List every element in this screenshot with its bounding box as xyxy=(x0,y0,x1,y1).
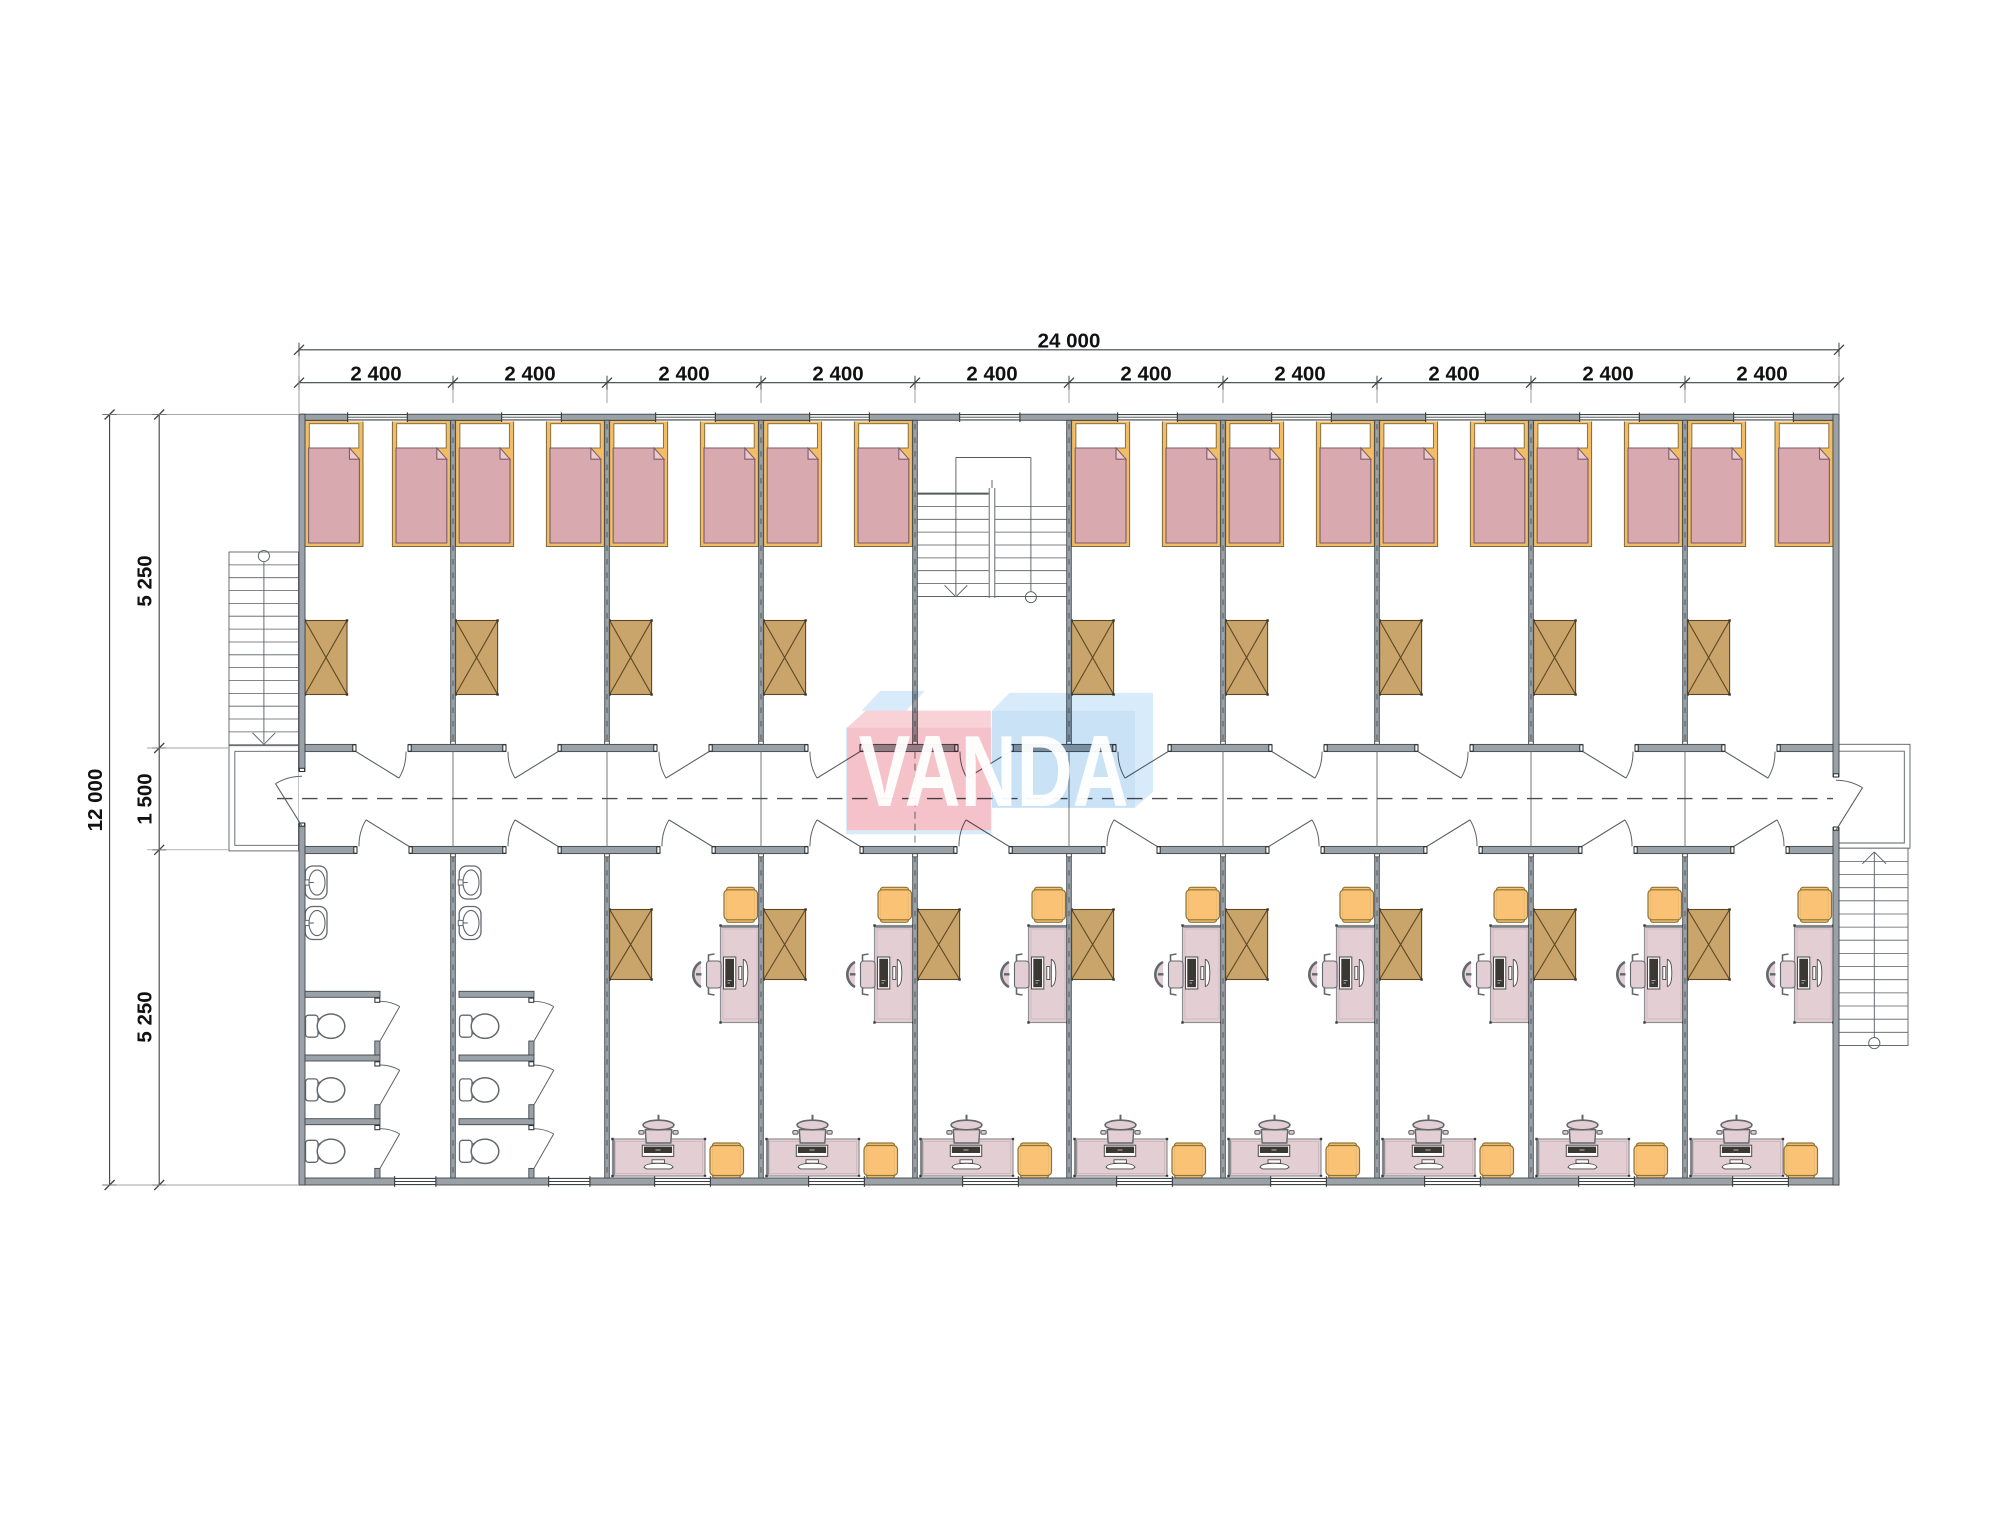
svg-text:2 400: 2 400 xyxy=(966,362,1017,385)
svg-text:2 400: 2 400 xyxy=(504,362,555,385)
svg-text:1 500: 1 500 xyxy=(134,773,157,824)
svg-text:2 400: 2 400 xyxy=(1274,362,1325,385)
svg-text:5 250: 5 250 xyxy=(134,991,157,1042)
svg-text:2 400: 2 400 xyxy=(658,362,709,385)
svg-text:24 000: 24 000 xyxy=(1038,329,1101,352)
svg-text:2 400: 2 400 xyxy=(1582,362,1633,385)
svg-text:2 400: 2 400 xyxy=(1428,362,1479,385)
svg-text:2 400: 2 400 xyxy=(1736,362,1787,385)
svg-text:VANDA: VANDA xyxy=(859,716,1129,828)
svg-text:2 400: 2 400 xyxy=(1120,362,1171,385)
svg-text:2 400: 2 400 xyxy=(350,362,401,385)
svg-text:12 000: 12 000 xyxy=(84,769,107,832)
svg-text:2 400: 2 400 xyxy=(812,362,863,385)
svg-text:5 250: 5 250 xyxy=(134,555,157,606)
